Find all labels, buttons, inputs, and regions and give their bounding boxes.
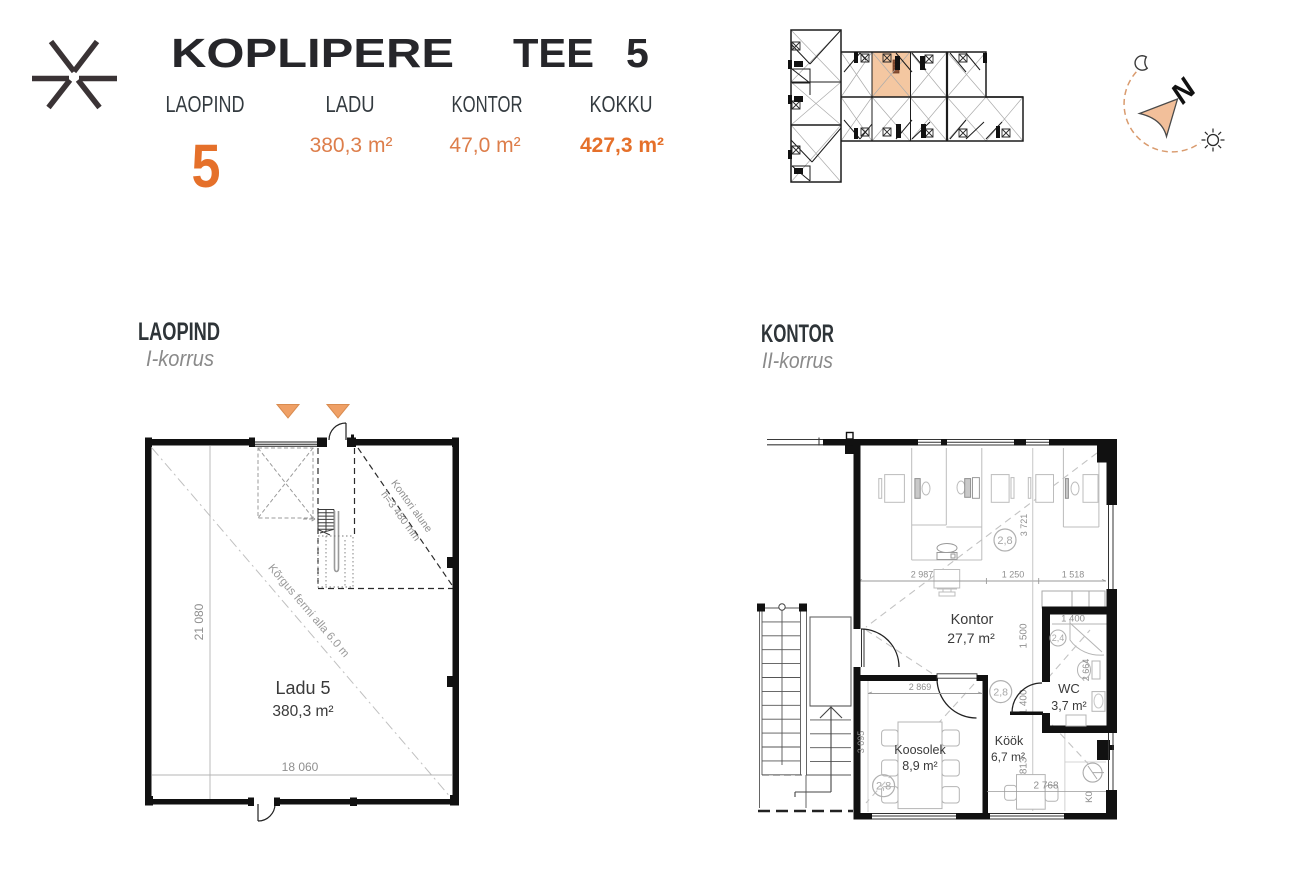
svg-text:8,9 m²: 8,9 m² <box>902 759 937 773</box>
svg-text:47,0 m²: 47,0 m² <box>449 134 520 157</box>
svg-text:2,8: 2,8 <box>993 687 1008 699</box>
svg-text:Kõrgus fermi alla 6.0 m: Kõrgus fermi alla 6.0 m <box>265 562 351 660</box>
svg-text:5: 5 <box>626 30 649 76</box>
svg-text:Köök: Köök <box>995 734 1024 748</box>
svg-text:2,4: 2,4 <box>1052 633 1065 643</box>
svg-text:LAOPIND: LAOPIND <box>138 318 220 346</box>
svg-text:2 869: 2 869 <box>909 682 932 692</box>
svg-text:3,7 m²: 3,7 m² <box>1051 699 1086 713</box>
svg-text:2 768: 2 768 <box>1033 781 1058 792</box>
svg-text:LADU: LADU <box>326 91 375 117</box>
svg-text:LAOPIND: LAOPIND <box>166 91 245 117</box>
svg-text:380,3 m²: 380,3 m² <box>272 703 333 720</box>
svg-text:KOKKU: KOKKU <box>590 91 653 117</box>
svg-text:1 500: 1 500 <box>1019 623 1030 648</box>
svg-text:3 721: 3 721 <box>1019 514 1029 537</box>
svg-text:5: 5 <box>192 132 221 200</box>
svg-text:KONTOR: KONTOR <box>761 320 834 348</box>
svg-text:27,7 m²: 27,7 m² <box>947 630 995 646</box>
svg-text:I-korrus: I-korrus <box>146 346 214 371</box>
svg-text:18 060: 18 060 <box>282 760 319 774</box>
svg-text:427,3 m²: 427,3 m² <box>580 134 664 157</box>
svg-text:2 987: 2 987 <box>911 570 934 580</box>
svg-text:2,8: 2,8 <box>997 535 1012 547</box>
svg-text:KONTOR: KONTOR <box>452 91 523 117</box>
svg-text:Ladu 5: Ladu 5 <box>275 678 330 698</box>
svg-text:1 400: 1 400 <box>1061 614 1085 625</box>
svg-text:Koosolek: Koosolek <box>894 743 946 757</box>
svg-text:Kontor: Kontor <box>951 612 994 628</box>
svg-text:1 518: 1 518 <box>1062 570 1085 580</box>
svg-text:K0: K0 <box>1084 791 1095 803</box>
svg-text:TEE: TEE <box>513 30 594 76</box>
svg-text:KOPLIPERE: KOPLIPERE <box>171 30 454 76</box>
svg-text:380,3 m²: 380,3 m² <box>310 134 393 157</box>
svg-text:2,8: 2,8 <box>876 781 891 793</box>
svg-text:21 080: 21 080 <box>192 603 206 640</box>
svg-text:2 664: 2 664 <box>1081 659 1091 682</box>
svg-text:1 250: 1 250 <box>1002 570 1025 580</box>
svg-text:3 095: 3 095 <box>856 731 866 754</box>
svg-text:WC: WC <box>1058 681 1080 696</box>
svg-text:II-korrus: II-korrus <box>762 348 833 373</box>
